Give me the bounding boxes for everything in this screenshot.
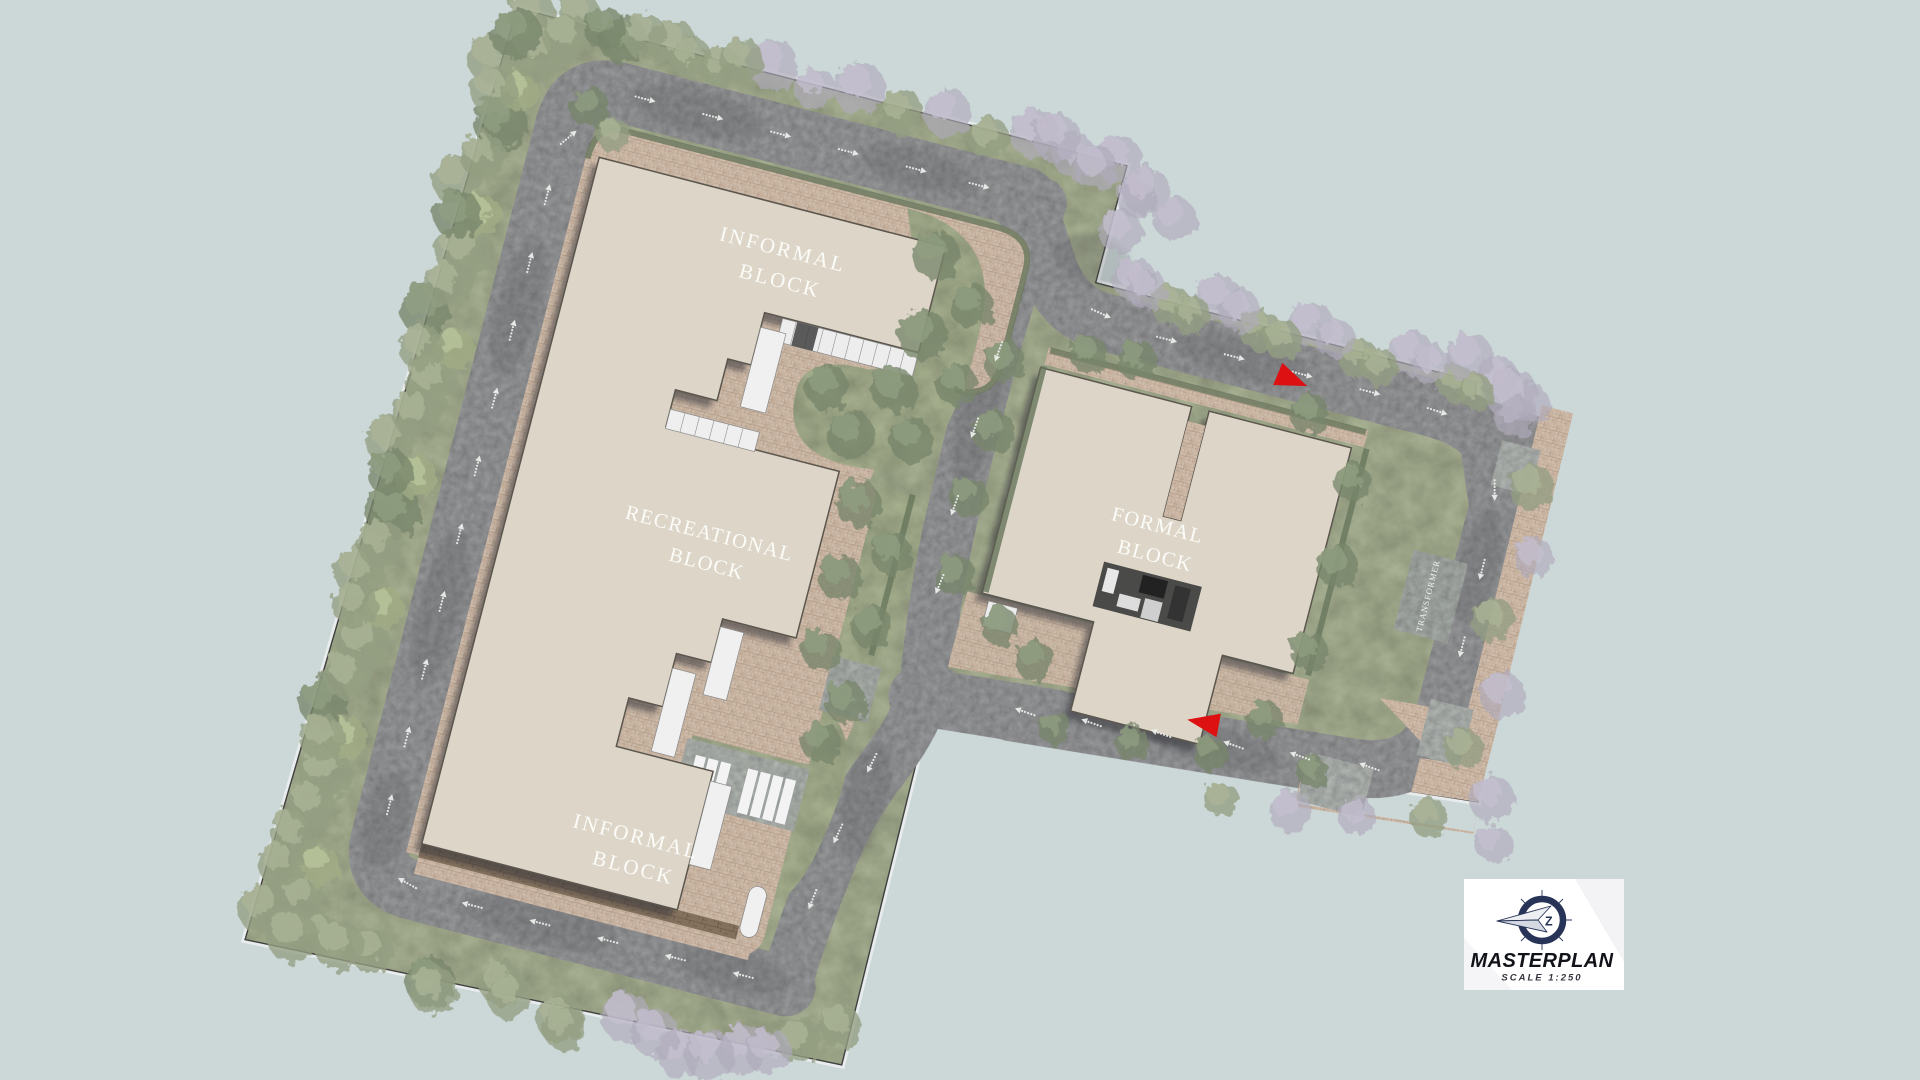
svg-text:Z: Z <box>1545 915 1553 929</box>
svg-text:MASTERPLAN: MASTERPLAN <box>1471 950 1614 972</box>
svg-text:SCALE 1:250: SCALE 1:250 <box>1501 973 1582 984</box>
